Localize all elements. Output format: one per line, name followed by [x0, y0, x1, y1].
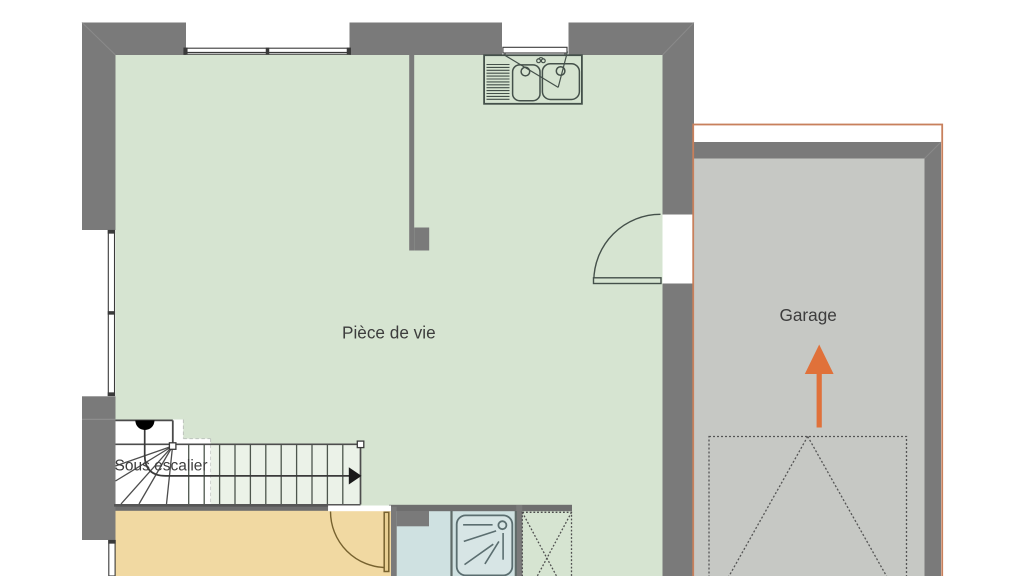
svg-text:Garage: Garage	[780, 305, 837, 325]
svg-text:Pièce de vie: Pièce de vie	[342, 322, 436, 342]
svg-text:Sous escalier: Sous escalier	[115, 458, 208, 475]
